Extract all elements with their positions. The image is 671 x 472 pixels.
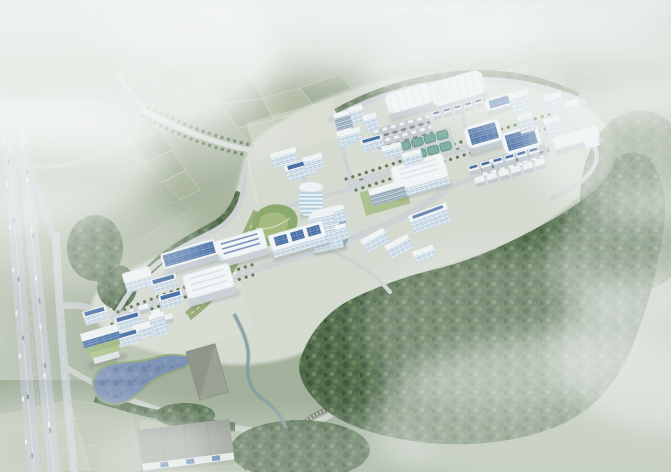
aerial-rendering-stage	[0, 0, 671, 472]
masterplan-aerial-rendering	[0, 0, 671, 472]
